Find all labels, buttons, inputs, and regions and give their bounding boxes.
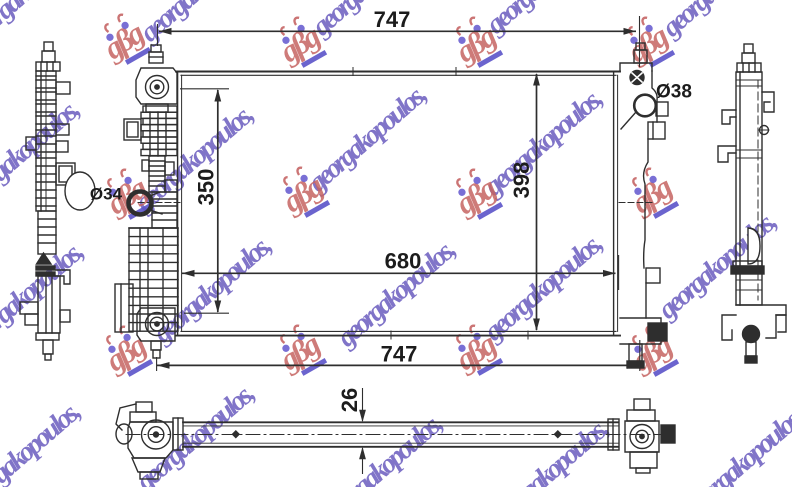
svg-text:680: 680 [385, 249, 422, 274]
svg-text:398: 398 [509, 162, 534, 199]
svg-text:747: 747 [374, 7, 411, 32]
svg-text:Ø38: Ø38 [656, 82, 692, 103]
svg-text:747: 747 [381, 342, 418, 367]
svg-text:Ø34: Ø34 [90, 185, 123, 204]
svg-text:26: 26 [337, 388, 362, 412]
svg-text:350: 350 [194, 169, 219, 206]
